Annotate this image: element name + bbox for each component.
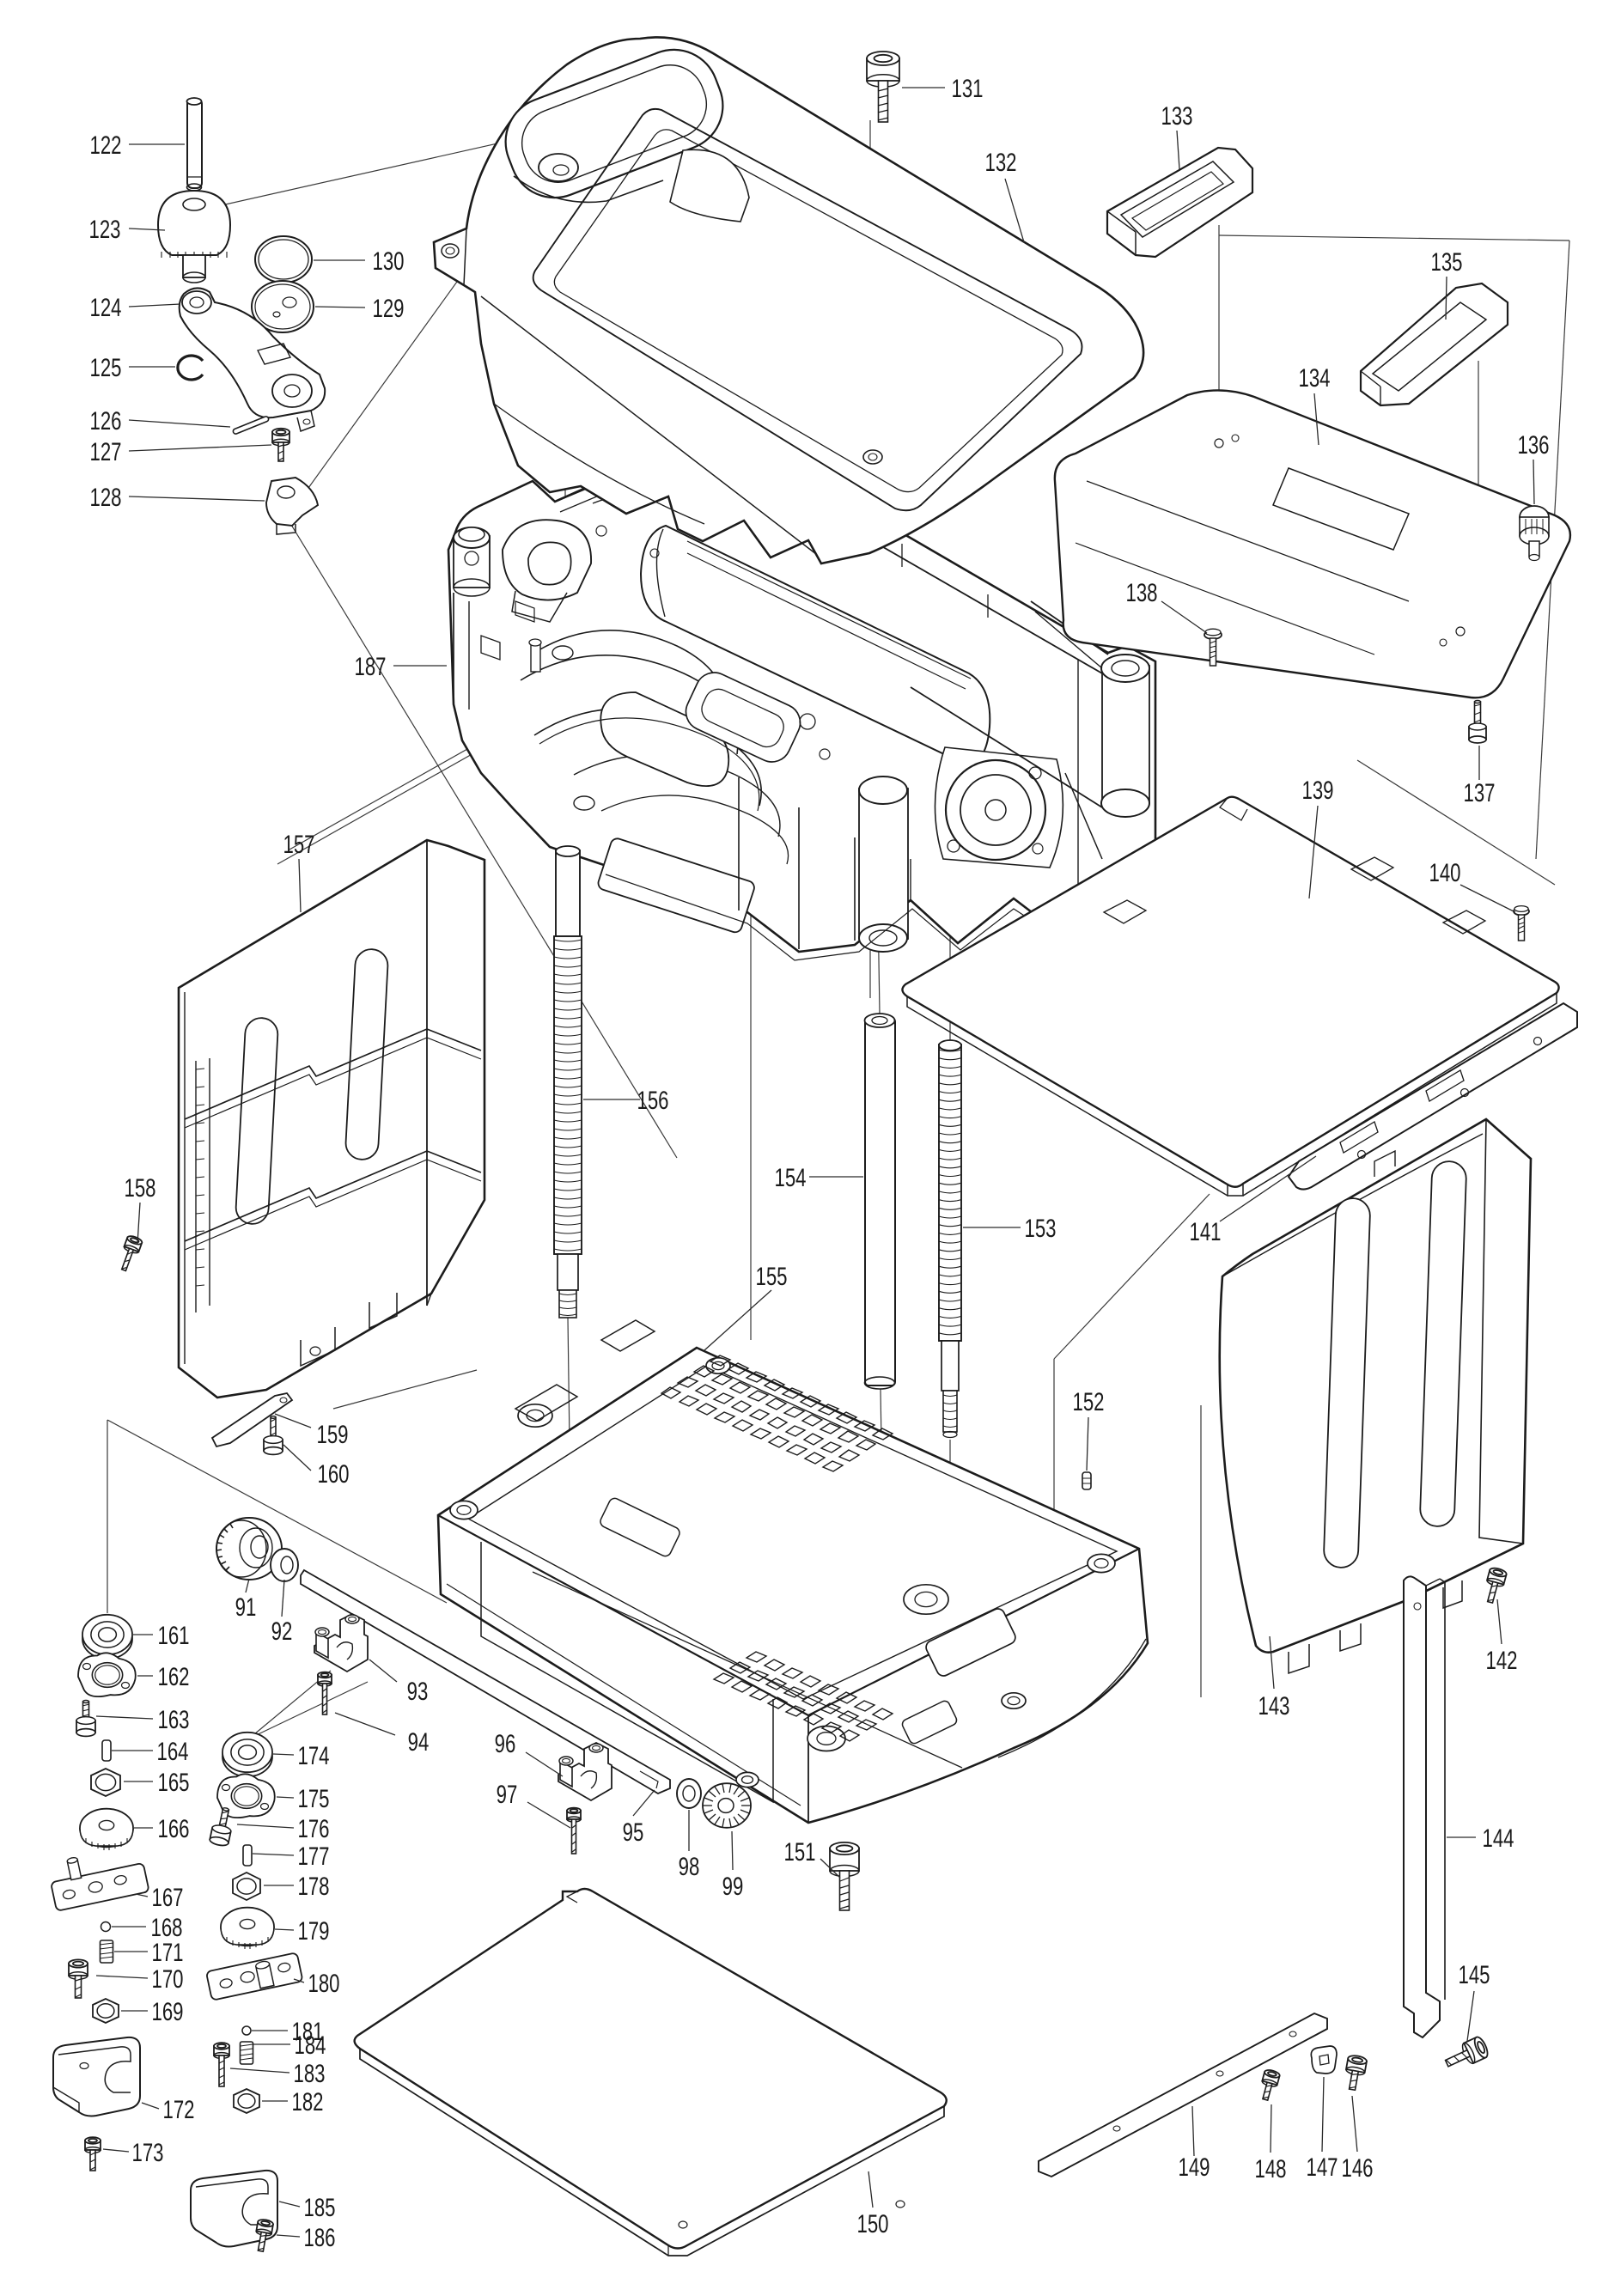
svg-text:175: 175 — [297, 1784, 329, 1813]
svg-text:135: 135 — [1430, 247, 1462, 277]
svg-text:183: 183 — [293, 2059, 325, 2088]
svg-text:141: 141 — [1189, 1217, 1221, 1246]
svg-text:163: 163 — [157, 1705, 189, 1734]
svg-text:128: 128 — [89, 483, 121, 512]
svg-text:138: 138 — [1125, 578, 1157, 607]
svg-text:94: 94 — [408, 1727, 430, 1757]
svg-text:187: 187 — [354, 652, 386, 681]
svg-text:150: 150 — [856, 2209, 888, 2238]
svg-text:97: 97 — [497, 1780, 518, 1809]
svg-text:137: 137 — [1463, 778, 1495, 807]
svg-text:144: 144 — [1482, 1824, 1514, 1853]
svg-text:166: 166 — [157, 1814, 189, 1843]
svg-text:161: 161 — [157, 1621, 189, 1650]
svg-text:145: 145 — [1458, 1960, 1490, 1989]
svg-text:164: 164 — [156, 1737, 188, 1766]
svg-text:151: 151 — [783, 1837, 815, 1867]
svg-text:136: 136 — [1517, 430, 1549, 460]
svg-text:174: 174 — [297, 1741, 329, 1770]
svg-text:182: 182 — [291, 2087, 323, 2116]
svg-text:148: 148 — [1254, 2154, 1286, 2183]
svg-text:134: 134 — [1298, 363, 1330, 393]
svg-text:155: 155 — [755, 1262, 787, 1291]
svg-text:124: 124 — [89, 293, 121, 322]
svg-text:170: 170 — [151, 1964, 183, 1994]
svg-text:131: 131 — [951, 74, 983, 103]
svg-text:125: 125 — [89, 353, 121, 382]
svg-text:122: 122 — [89, 131, 121, 160]
svg-text:160: 160 — [317, 1459, 349, 1489]
svg-text:162: 162 — [157, 1662, 189, 1691]
svg-text:126: 126 — [89, 406, 121, 435]
svg-text:123: 123 — [88, 215, 120, 244]
svg-text:184: 184 — [294, 2031, 326, 2060]
svg-text:179: 179 — [297, 1916, 329, 1946]
svg-text:129: 129 — [372, 294, 404, 323]
svg-text:185: 185 — [303, 2193, 335, 2222]
svg-text:173: 173 — [131, 2138, 163, 2167]
svg-text:130: 130 — [372, 247, 404, 276]
svg-text:152: 152 — [1072, 1387, 1104, 1416]
svg-text:186: 186 — [303, 2223, 335, 2252]
svg-text:93: 93 — [407, 1677, 429, 1706]
svg-text:146: 146 — [1341, 2153, 1373, 2183]
svg-text:133: 133 — [1161, 101, 1192, 131]
svg-text:165: 165 — [157, 1768, 189, 1797]
svg-text:153: 153 — [1024, 1214, 1056, 1243]
svg-text:95: 95 — [623, 1818, 644, 1847]
svg-text:154: 154 — [774, 1163, 806, 1192]
svg-text:157: 157 — [283, 830, 314, 859]
svg-text:92: 92 — [271, 1617, 293, 1646]
svg-text:143: 143 — [1258, 1691, 1289, 1720]
svg-text:158: 158 — [124, 1173, 155, 1203]
svg-text:142: 142 — [1485, 1646, 1517, 1675]
svg-text:176: 176 — [297, 1814, 329, 1843]
svg-text:99: 99 — [722, 1872, 744, 1901]
svg-text:147: 147 — [1306, 2153, 1338, 2182]
svg-text:169: 169 — [151, 1997, 183, 2026]
svg-text:132: 132 — [984, 148, 1016, 177]
svg-text:180: 180 — [308, 1969, 339, 1998]
svg-text:167: 167 — [151, 1883, 183, 1912]
svg-text:91: 91 — [235, 1593, 257, 1622]
svg-text:156: 156 — [637, 1086, 668, 1115]
svg-text:149: 149 — [1178, 2153, 1210, 2182]
svg-text:178: 178 — [297, 1872, 329, 1901]
svg-text:139: 139 — [1301, 776, 1333, 805]
svg-text:172: 172 — [162, 2095, 194, 2124]
svg-text:159: 159 — [316, 1420, 348, 1449]
svg-text:140: 140 — [1429, 858, 1460, 887]
svg-text:98: 98 — [679, 1852, 700, 1881]
svg-text:177: 177 — [297, 1842, 329, 1871]
svg-text:171: 171 — [151, 1938, 183, 1967]
svg-text:127: 127 — [89, 437, 121, 466]
svg-text:96: 96 — [495, 1729, 516, 1758]
